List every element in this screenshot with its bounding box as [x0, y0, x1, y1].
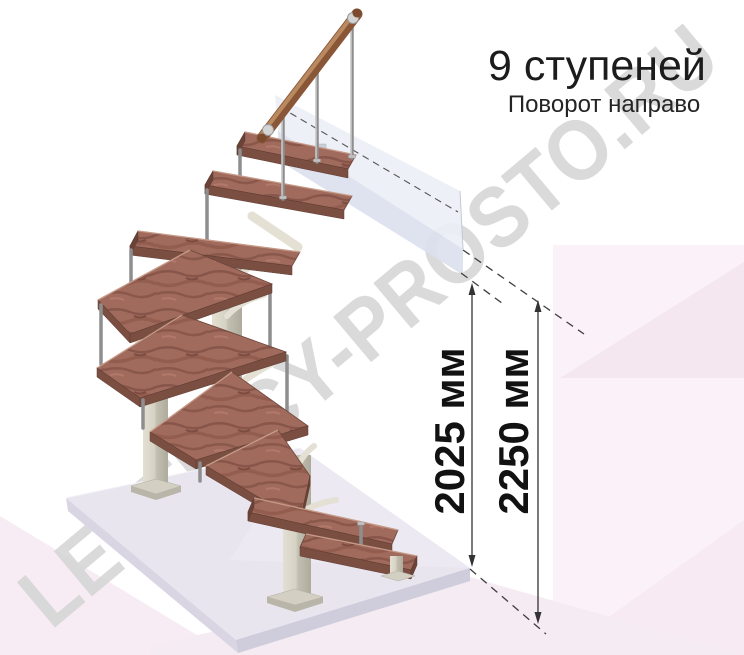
dimension-label-2025: 2025 мм	[426, 347, 473, 514]
staircase-diagram: LESTNICY-PROSTO.RU	[0, 0, 744, 655]
page-subtitle: Поворот направо	[508, 91, 700, 118]
dimension-label-2250: 2250 мм	[490, 347, 537, 514]
page-title: 9 ступеней	[488, 42, 706, 90]
handrail-ferrule-lower	[263, 125, 274, 136]
staircase-illustration: LESTNICY-PROSTO.RU	[0, 0, 744, 655]
